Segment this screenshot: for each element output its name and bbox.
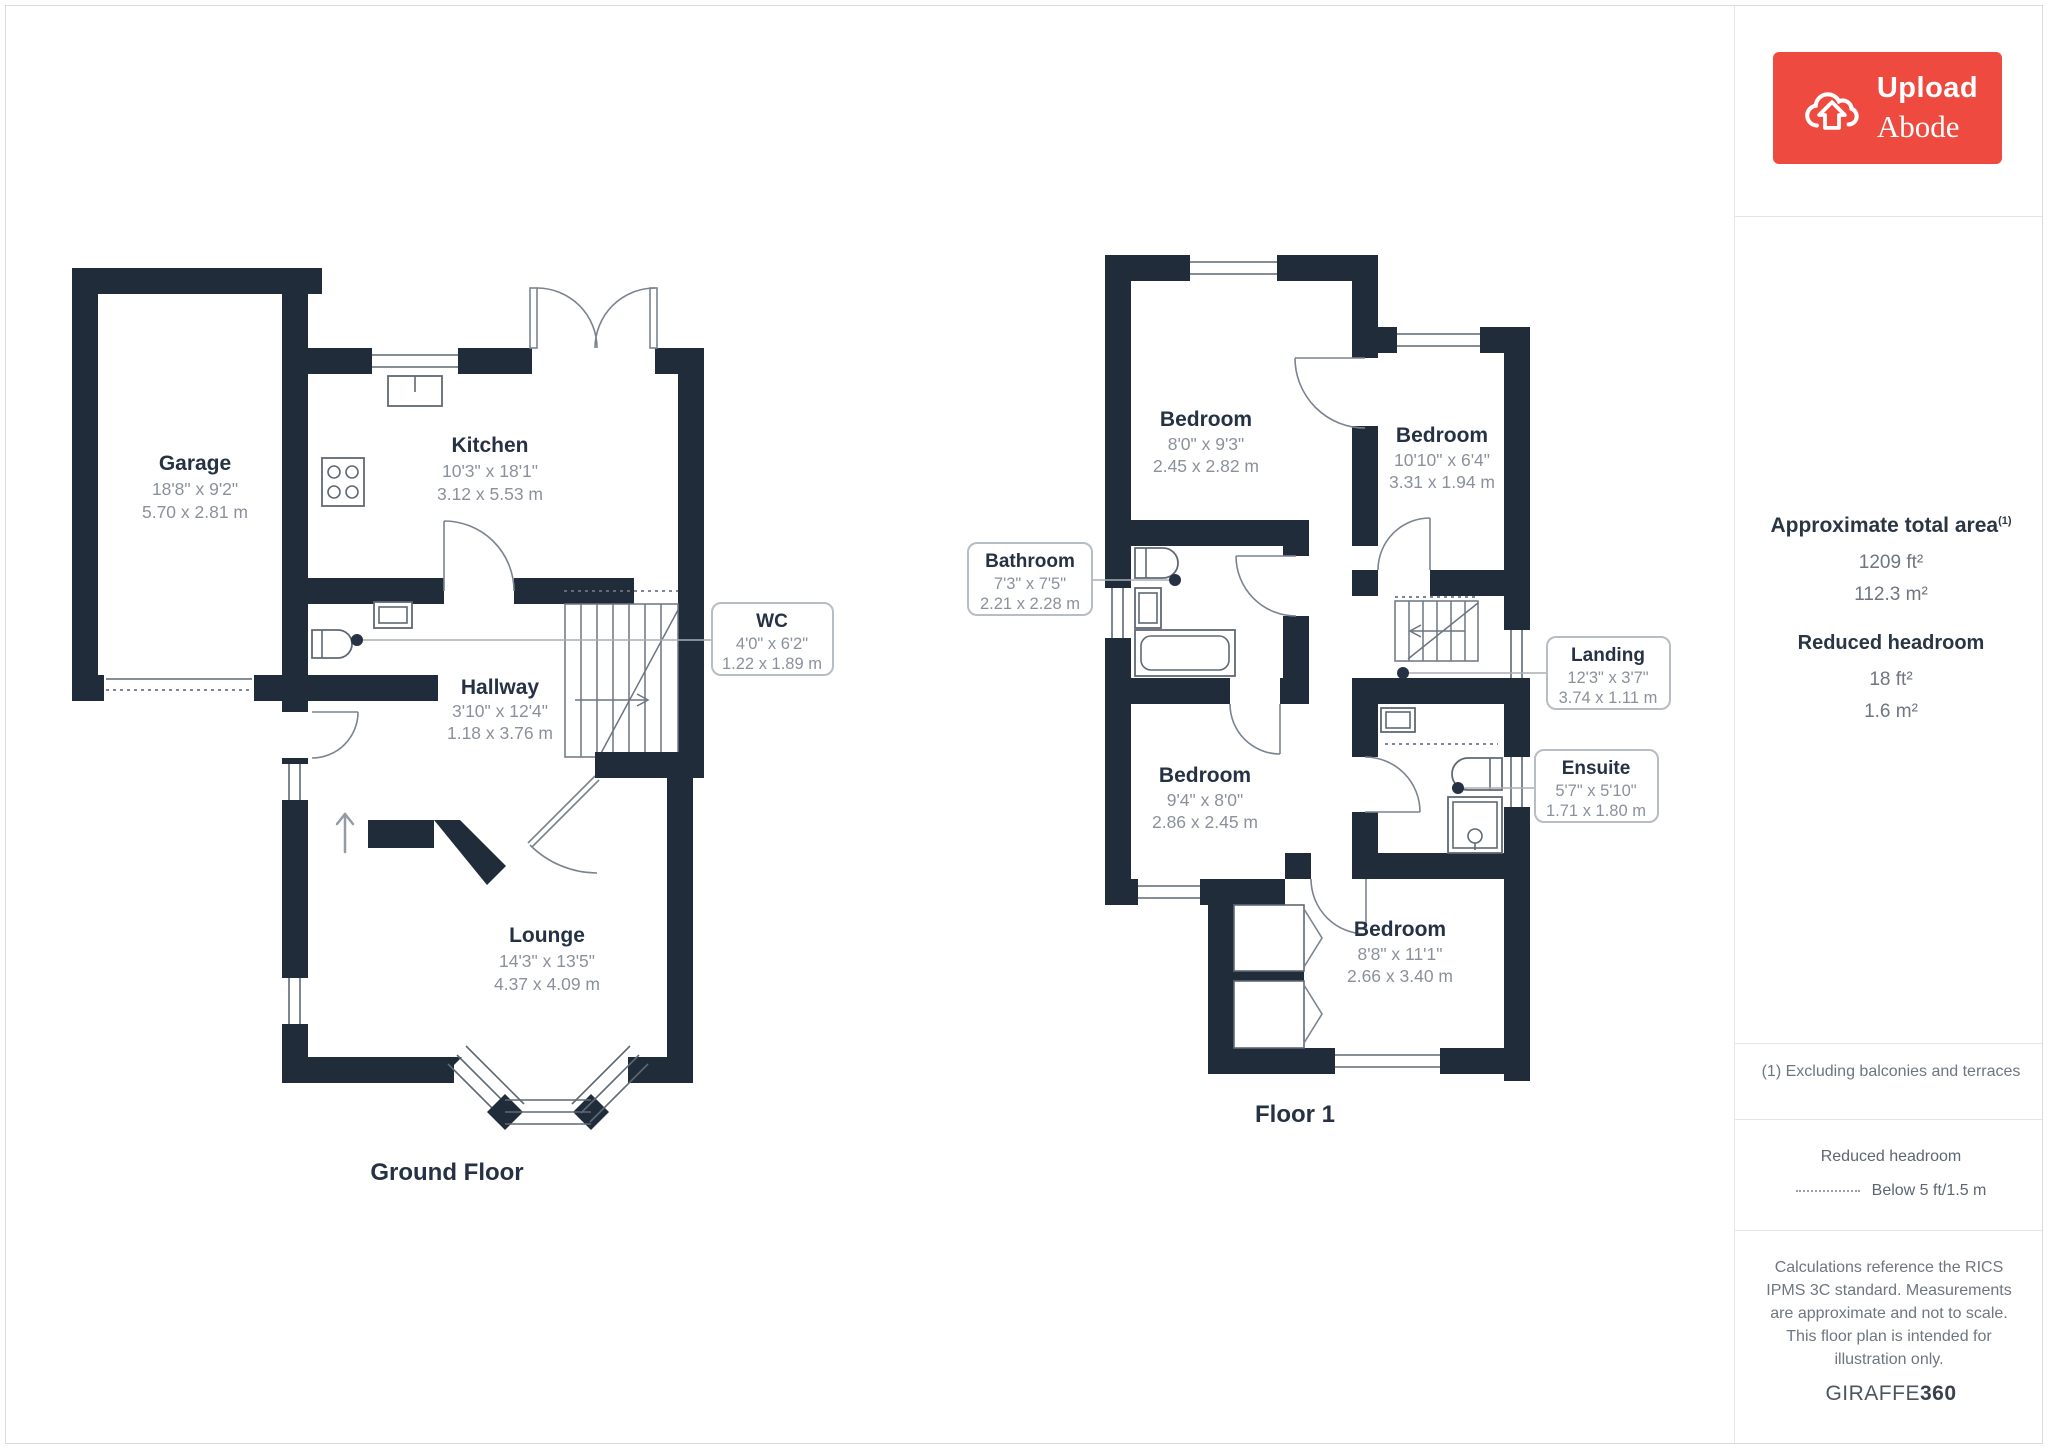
room-dim-ensuite-imperial: 5'7" x 5'10" xyxy=(1555,782,1636,800)
area-summary: Approximate total area(1) 1209 ft² 112.3… xyxy=(1734,514,2048,733)
room-label-hallway: Hallway 3'10" x 12'4" 1.18 x 3.76 m xyxy=(447,676,553,743)
room-label-bedroom-top-left: Bedroom 8'0" x 9'3" 2.45 x 2.82 m xyxy=(1153,408,1259,476)
room-dim-landing-imperial: 12'3" x 3'7" xyxy=(1567,669,1648,687)
hall-window xyxy=(282,764,308,800)
room-dim-landing-metric: 3.74 x 1.11 m xyxy=(1559,689,1658,707)
bedroom1-door xyxy=(1295,358,1365,428)
svg-text:2.45 x 2.82 m: 2.45 x 2.82 m xyxy=(1153,456,1259,476)
bathroom-toilet-icon xyxy=(1135,548,1178,578)
entrance-door xyxy=(312,712,358,758)
cloud-house-icon xyxy=(1797,77,1867,139)
section-divider-2 xyxy=(1735,1043,2042,1044)
svg-text:Lounge: Lounge xyxy=(509,924,585,947)
svg-text:1.18 x 3.76 m: 1.18 x 3.76 m xyxy=(447,723,553,743)
svg-text:5.70 x 2.81 m: 5.70 x 2.81 m xyxy=(142,502,248,522)
ensuite-window xyxy=(1504,757,1530,807)
svg-text:Kitchen: Kitchen xyxy=(451,434,528,457)
room-label-kitchen: Kitchen 10'3" x 18'1" 3.12 x 5.53 m xyxy=(437,434,543,504)
room-label-lounge: Lounge 14'3" x 13'5" 4.37 x 4.09 m xyxy=(494,924,600,994)
room-label-bathroom: Bathroom xyxy=(985,551,1075,572)
svg-text:8'8" x 11'1": 8'8" x 11'1" xyxy=(1358,944,1443,964)
svg-text:10'3" x 18'1": 10'3" x 18'1" xyxy=(442,461,538,481)
room-label-garage: Garage 18'8" x 9'2" 5.70 x 2.81 m xyxy=(142,452,248,522)
first-floor-caption: Floor 1 xyxy=(1255,1101,1335,1128)
bedroom4-window xyxy=(1335,1048,1440,1074)
area-note-ref: (1) xyxy=(1998,515,2011,527)
svg-text:Garage: Garage xyxy=(159,452,231,475)
svg-text:18'8" x 9'2": 18'8" x 9'2" xyxy=(152,479,238,499)
stairs-ground xyxy=(565,604,678,757)
disclaimer-text: Calculations reference the RICS IPMS 3C … xyxy=(1764,1256,2014,1371)
giraffe360-bold: 360 xyxy=(1920,1382,1957,1405)
bay-window xyxy=(436,1046,657,1130)
floorplan-page: WC 4'0" x 6'2" 1.22 x 1.89 m Garage 18'8… xyxy=(0,0,2048,1449)
legend-title: Reduced headroom xyxy=(1734,1148,2048,1166)
svg-text:10'10" x 6'4": 10'10" x 6'4" xyxy=(1394,450,1490,470)
headroom-m-value: 1.6 m² xyxy=(1734,701,2048,723)
shower-icon xyxy=(1448,797,1502,853)
svg-text:Hallway: Hallway xyxy=(461,676,540,699)
headroom-heading: Reduced headroom xyxy=(1734,632,2048,655)
headroom-ft-value: 18 ft² xyxy=(1734,669,2048,691)
section-divider-1 xyxy=(1735,216,2042,217)
wc-callout: WC 4'0" x 6'2" 1.22 x 1.89 m xyxy=(351,603,833,675)
svg-text:9'4" x 8'0": 9'4" x 8'0" xyxy=(1167,790,1244,810)
ensuite-basin-icon xyxy=(1381,708,1415,732)
bedroom1-window xyxy=(1190,255,1277,281)
ground-floor-plan: WC 4'0" x 6'2" 1.22 x 1.89 m Garage 18'8… xyxy=(72,268,833,1186)
room-label-bedroom-bottom: Bedroom 8'8" x 11'1" 2.66 x 3.40 m xyxy=(1347,918,1453,986)
bedroom3-window xyxy=(1138,879,1200,905)
room-dim-wc-metric: 1.22 x 1.89 m xyxy=(722,655,822,673)
ground-floor-caption: Ground Floor xyxy=(370,1159,523,1186)
svg-text:8'0" x 9'3": 8'0" x 9'3" xyxy=(1168,434,1245,454)
svg-text:2.66 x 3.40 m: 2.66 x 3.40 m xyxy=(1347,966,1453,986)
giraffe360-logo: GIRAFFE360 xyxy=(1734,1382,2048,1406)
section-divider-3 xyxy=(1735,1119,2042,1120)
section-divider-4 xyxy=(1735,1230,2042,1231)
giraffe360-regular: GIRAFFE xyxy=(1825,1382,1920,1405)
first-floor-plan: Bathroom 7'3" x 7'5" 2.21 x 2.28 m Landi… xyxy=(968,255,1670,1128)
area-heading: Approximate total area(1) xyxy=(1734,514,2048,538)
logo-word-abode: Abode xyxy=(1877,109,1978,145)
room-label-landing: Landing xyxy=(1571,645,1645,666)
garage-door xyxy=(106,679,252,690)
reduced-headroom-dotted-line xyxy=(1796,1190,1860,1192)
bathtub-icon xyxy=(1135,630,1235,676)
stairs-first xyxy=(1395,601,1478,661)
area-footnote: (1) Excluding balconies and terraces xyxy=(1734,1063,2048,1081)
svg-text:14'3" x 13'5": 14'3" x 13'5" xyxy=(499,951,595,971)
bedroom2-window xyxy=(1397,327,1480,353)
bedroom2-door xyxy=(1378,518,1430,570)
kitchen-window xyxy=(372,348,458,374)
reduced-headroom-legend: Reduced headroom Below 5 ft/1.5 m xyxy=(1734,1148,2048,1200)
svg-text:3'10" x 12'4": 3'10" x 12'4" xyxy=(452,701,548,721)
room-dim-wc-imperial: 4'0" x 6'2" xyxy=(736,635,808,653)
room-dim-bathroom-imperial: 7'3" x 7'5" xyxy=(994,575,1066,593)
lounge-door xyxy=(528,776,599,873)
room-label-wc: WC xyxy=(756,611,788,632)
toilet-icon xyxy=(312,630,352,658)
lounge-side-window xyxy=(282,978,308,1024)
wc-basin-icon xyxy=(374,602,412,628)
floor-plans: WC 4'0" x 6'2" 1.22 x 1.89 m Garage 18'8… xyxy=(0,0,1734,1449)
ensuite-door xyxy=(1365,757,1420,812)
bedroom3-door xyxy=(1230,704,1280,754)
room-dim-ensuite-metric: 1.71 x 1.80 m xyxy=(1546,802,1646,820)
french-doors xyxy=(530,288,657,348)
area-m-value: 112.3 m² xyxy=(1734,584,2048,606)
svg-text:2.86 x 2.45 m: 2.86 x 2.45 m xyxy=(1152,812,1258,832)
room-dim-bathroom-metric: 2.21 x 2.28 m xyxy=(980,595,1080,613)
legend-label: Below 5 ft/1.5 m xyxy=(1872,1182,1987,1200)
room-label-bedroom-top-right: Bedroom 10'10" x 6'4" 3.31 x 1.94 m xyxy=(1389,424,1495,492)
svg-text:Bedroom: Bedroom xyxy=(1159,764,1251,787)
logo-word-upload: Upload xyxy=(1877,72,1978,105)
svg-text:3.31 x 1.94 m: 3.31 x 1.94 m xyxy=(1389,472,1495,492)
entrance-arrow-icon xyxy=(337,814,353,852)
bathroom-door xyxy=(1236,556,1296,616)
svg-text:4.37 x 4.09 m: 4.37 x 4.09 m xyxy=(494,974,600,994)
sidebar: Upload Abode Approximate total area(1) 1… xyxy=(1734,0,2048,1449)
area-ft-value: 1209 ft² xyxy=(1734,552,2048,574)
bathroom-basin-icon xyxy=(1135,588,1161,628)
svg-text:Bedroom: Bedroom xyxy=(1354,918,1446,941)
bathroom-window xyxy=(1105,588,1131,638)
kitchen-sink-icon xyxy=(388,376,442,406)
stove-icon xyxy=(322,458,364,506)
room-label-ensuite: Ensuite xyxy=(1562,758,1631,779)
svg-text:Bedroom: Bedroom xyxy=(1396,424,1488,447)
upload-abode-logo: Upload Abode xyxy=(1773,52,2002,164)
kitchen-door xyxy=(444,521,514,591)
svg-text:Bedroom: Bedroom xyxy=(1160,408,1252,431)
room-label-bedroom-mid: Bedroom 9'4" x 8'0" 2.86 x 2.45 m xyxy=(1152,764,1258,832)
svg-text:3.12 x 5.53 m: 3.12 x 5.53 m xyxy=(437,484,543,504)
